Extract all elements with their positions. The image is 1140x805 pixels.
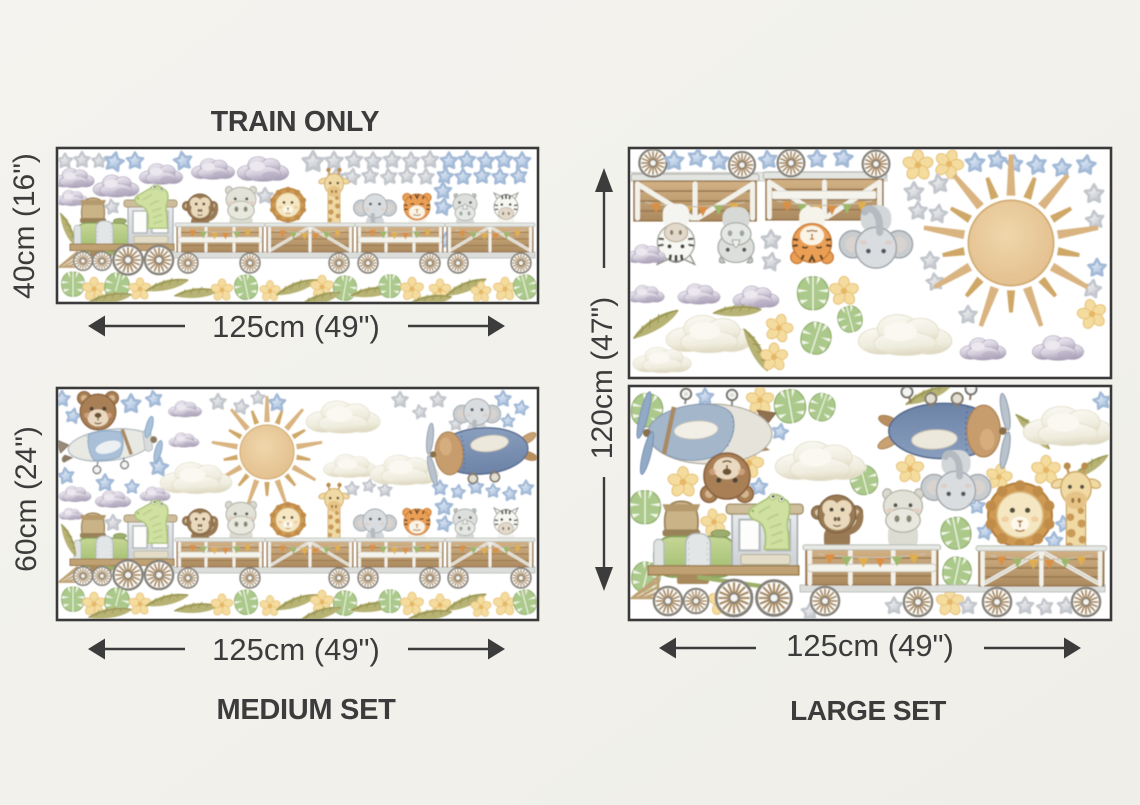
svg-text:125cm (49"): 125cm (49") (786, 628, 954, 663)
svg-text:40cm (16"): 40cm (16") (8, 153, 41, 299)
svg-text:60cm (24"): 60cm (24") (10, 426, 43, 572)
svg-text:125cm (49"): 125cm (49") (212, 309, 380, 344)
svg-text:MEDIUM SET: MEDIUM SET (216, 694, 396, 726)
svg-text:125cm (49"): 125cm (49") (212, 632, 380, 667)
svg-text:LARGE SET: LARGE SET (790, 695, 946, 726)
svg-text:120cm (47"): 120cm (47") (586, 297, 619, 459)
svg-text:TRAIN ONLY: TRAIN ONLY (211, 106, 380, 138)
